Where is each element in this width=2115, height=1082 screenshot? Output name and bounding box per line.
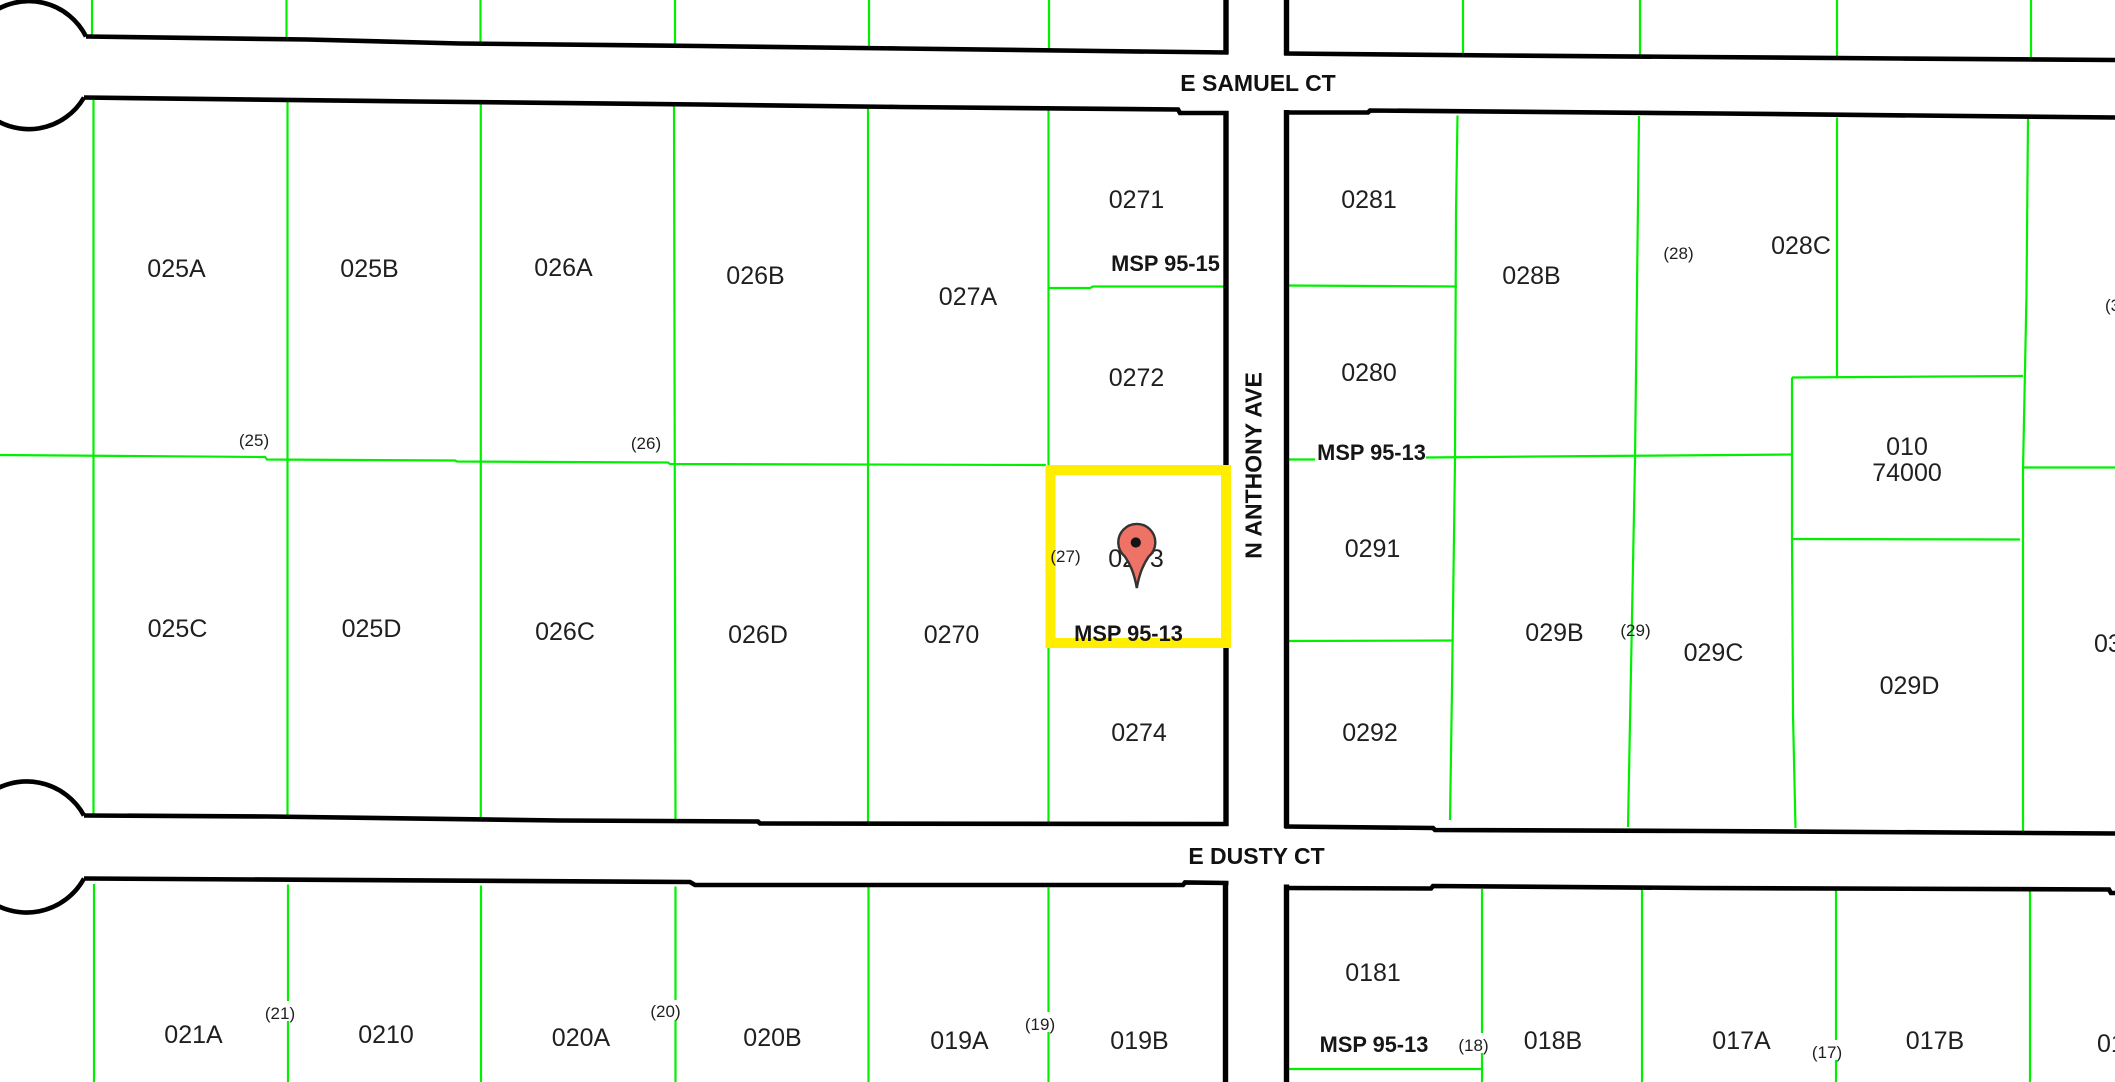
svg-text:(25): (25): [239, 431, 269, 450]
svg-text:0292: 0292: [1342, 719, 1398, 747]
svg-text:028C: 028C: [1771, 232, 1831, 260]
svg-text:(17): (17): [1812, 1043, 1842, 1062]
svg-text:025B: 025B: [340, 255, 398, 283]
svg-text:019B: 019B: [1110, 1027, 1168, 1055]
svg-text:020B: 020B: [743, 1024, 801, 1052]
svg-text:026B: 026B: [726, 262, 784, 290]
svg-text:017A: 017A: [1712, 1027, 1771, 1055]
svg-text:74000: 74000: [1872, 459, 1942, 487]
svg-text:(19): (19): [1025, 1015, 1055, 1034]
svg-text:029D: 029D: [1880, 672, 1940, 700]
svg-text:MSP 95-13: MSP 95-13: [1317, 440, 1426, 465]
svg-text:MSP 95-13: MSP 95-13: [1320, 1032, 1429, 1057]
svg-text:(27): (27): [1050, 547, 1080, 566]
svg-text:020A: 020A: [552, 1024, 611, 1052]
svg-text:026D: 026D: [728, 621, 788, 649]
svg-text:029B: 029B: [1525, 619, 1583, 647]
svg-text:0280: 0280: [1341, 359, 1397, 387]
svg-text:MSP 95-13: MSP 95-13: [1074, 621, 1183, 646]
svg-text:030: 030: [2094, 630, 2115, 658]
svg-text:(30): (30): [2105, 296, 2115, 315]
svg-text:MSP 95-15: MSP 95-15: [1111, 251, 1220, 276]
svg-text:(26): (26): [631, 434, 661, 453]
svg-text:0281: 0281: [1341, 186, 1397, 214]
svg-text:018B: 018B: [1524, 1027, 1582, 1055]
svg-text:(21): (21): [265, 1004, 295, 1023]
svg-text:017B: 017B: [1906, 1027, 1964, 1055]
svg-text:0291: 0291: [1345, 535, 1401, 563]
svg-text:0210: 0210: [358, 1021, 414, 1049]
svg-text:028B: 028B: [1502, 262, 1560, 290]
svg-text:025D: 025D: [342, 615, 402, 643]
svg-text:E SAMUEL CT: E SAMUEL CT: [1180, 70, 1335, 96]
svg-text:025C: 025C: [148, 615, 208, 643]
svg-text:(29): (29): [1620, 621, 1650, 640]
svg-text:0270: 0270: [924, 621, 980, 649]
svg-text:N ANTHONY AVE: N ANTHONY AVE: [1241, 372, 1267, 559]
svg-text:0181: 0181: [1345, 959, 1401, 987]
svg-text:029C: 029C: [1684, 639, 1744, 667]
svg-text:021A: 021A: [164, 1021, 223, 1049]
svg-text:(28): (28): [1663, 244, 1693, 263]
svg-text:0271: 0271: [1109, 186, 1165, 214]
svg-text:0272: 0272: [1109, 364, 1165, 392]
svg-text:017C: 017C: [2097, 1030, 2115, 1058]
svg-text:027A: 027A: [939, 283, 998, 311]
svg-text:0274: 0274: [1111, 719, 1167, 747]
svg-text:025A: 025A: [147, 255, 206, 283]
svg-text:019A: 019A: [930, 1027, 989, 1055]
svg-text:(20): (20): [650, 1002, 680, 1021]
svg-text:E DUSTY CT: E DUSTY CT: [1188, 843, 1324, 869]
svg-text:(18): (18): [1458, 1036, 1488, 1055]
svg-text:026A: 026A: [534, 254, 593, 282]
svg-text:010: 010: [1886, 433, 1928, 461]
svg-text:026C: 026C: [535, 618, 595, 646]
